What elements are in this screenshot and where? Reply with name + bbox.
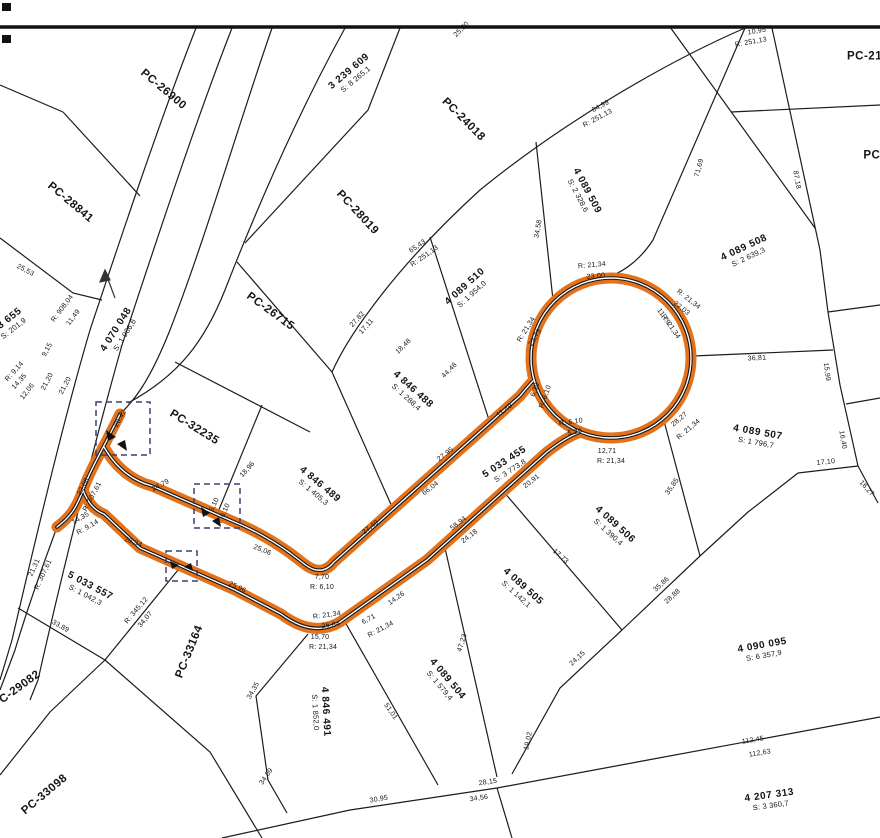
dimension-label: 36,81 <box>748 354 767 363</box>
dimension-label: R: 6,10 <box>310 584 334 592</box>
detail-arrow-markers <box>106 430 221 571</box>
dimension-label: R: 21,34 <box>597 458 625 466</box>
dimension-label: 12,71 <box>598 448 617 456</box>
dimension-label: 7,70 <box>315 574 329 582</box>
dimension-label: 23,00 <box>586 272 605 282</box>
dimension-label: 15,70 <box>311 634 330 642</box>
pc-parcel-label: PC- <box>863 149 880 162</box>
corner-marks <box>2 3 11 43</box>
cadastral-plan: PC-26900PC-28841PC-24018PC-28019PC-26715… <box>0 0 880 838</box>
dimension-label: R: 21,34 <box>309 644 337 652</box>
pc-parcel-label: PC-215 <box>847 50 880 63</box>
highlighted-road[interactable] <box>57 278 691 628</box>
plan-linework <box>0 0 880 838</box>
parcel-id-label: 4 846 491S: 1 852,0 <box>310 687 333 738</box>
